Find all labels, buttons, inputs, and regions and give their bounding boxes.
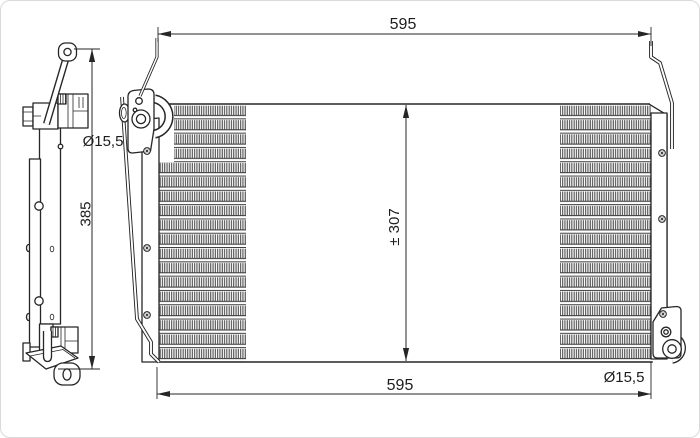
fin-core-left [159, 162, 246, 362]
fin-core-left-upper [174, 105, 246, 162]
side-height-label: 385 [78, 201, 95, 226]
bottom-width-dimension: 595 [157, 362, 651, 399]
screw-icon [144, 245, 151, 252]
drawing-canvas: 385 Ø15,5 [0, 0, 700, 438]
screw-icon [659, 150, 666, 157]
mounting-hole [35, 202, 43, 210]
condenser-technical-drawing: 385 Ø15,5 [1, 1, 700, 438]
core-height-dimension: ± 307 [386, 105, 409, 361]
top-width-label: 595 [390, 16, 417, 33]
bottom-port-diameter-label: Ø15,5 [604, 369, 645, 386]
top-width-dimension: 595 [158, 16, 651, 46]
side-profile-strip [40, 119, 61, 324]
outlet-fitting [653, 307, 683, 361]
fitting-bolt-hole [136, 98, 143, 105]
mounting-hole [35, 297, 43, 305]
bracket-pin [140, 38, 157, 96]
top-port-diameter-label: Ø15,5 [83, 133, 124, 150]
side-panel [30, 159, 41, 347]
pin-detail [58, 144, 63, 149]
screw-icon [144, 312, 151, 319]
screw-icon [659, 216, 666, 223]
side-view: 385 Ø15,5 [23, 43, 123, 385]
inlet-fitting [120, 38, 170, 154]
core-height-label: ± 307 [386, 208, 403, 245]
screw-icon [660, 311, 667, 318]
front-view [120, 38, 683, 362]
fin-core-right [560, 105, 651, 362]
left-side-plate [142, 118, 159, 362]
bottom-width-label: 595 [387, 377, 414, 394]
screw-icon [144, 148, 151, 155]
